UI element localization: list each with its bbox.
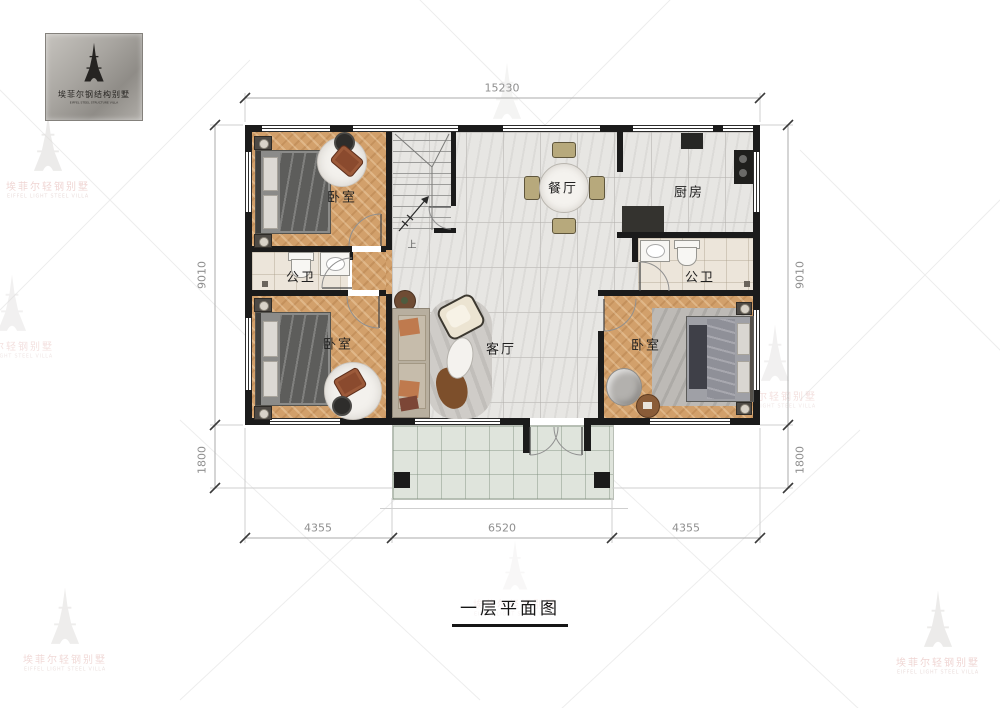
bed [686,316,754,402]
window [753,152,760,212]
watermark: 埃菲尔轻钢别墅 EIFFEL LIGHT STEEL VILLA [878,588,998,676]
porch-step-edge [380,508,628,509]
label-living: 客厅 [486,339,516,358]
window [270,418,340,425]
dim-bottom-right: 4355 [672,522,700,535]
floor-plan-page: 埃菲尔轻钢别墅 EIFFEL LIGHT STEEL VILLA 埃菲尔轻钢别墅… [0,0,1000,708]
dim-right-lower: 1800 [794,446,807,474]
watermark: 埃菲尔轻钢别墅 EIFFEL LIGHT STEEL VILLA [0,272,72,360]
dim-bottom-left: 4355 [304,522,332,535]
kitchen-counter [622,206,664,232]
logo-brand-en: EIFFEL STEEL STRUCTURE VILLA [58,101,130,105]
nightstand [254,136,272,150]
window [650,418,730,425]
watermark: 埃菲尔轻钢别墅 EIFFEL LIGHT STEEL VILLA [0,112,108,200]
wall-bath-l-bottom [252,290,348,296]
porch-floor [392,425,614,500]
drawing-title: 一层平面图 [452,594,568,627]
sofa [392,308,430,418]
label-bath-l: 公卫 [286,267,316,286]
watermark-text-cn: 埃菲尔轻钢别墅 [0,178,108,193]
watermark-text-en: EIFFEL LIGHT STEEL VILLA [0,194,96,200]
floor-drain [262,281,268,287]
window [245,152,252,212]
dim-right-upper: 9010 [794,261,807,289]
nightstand [254,406,272,420]
nightstand [736,402,752,415]
label-bedroom-bl: 卧室 [323,334,353,353]
side-table [636,394,660,418]
dim-bottom-center: 6520 [488,522,516,535]
dining-chair [552,218,576,234]
wall-bath-r-left [632,238,638,262]
window [723,125,753,132]
dining-chair [524,176,540,200]
label-bath-r: 公卫 [685,267,715,286]
wall-stub [381,246,386,252]
corridor-floor [352,252,386,290]
stove [734,150,753,184]
nightstand [736,302,752,315]
wall-stair-right [451,132,456,206]
label-bedroom-tl: 卧室 [327,187,357,206]
wall-kitchen-left [617,132,623,172]
stair-treads [393,140,451,232]
patio-wing-wall [584,425,591,451]
nightstand [254,298,272,312]
wall-bedroom-tl-right [386,132,392,250]
logo-brand-cn: 埃菲尔钢结构别墅 [46,89,142,100]
window [262,125,330,132]
wall-bedroom-br-top [598,290,753,296]
label-bedroom-br: 卧室 [631,335,661,354]
label-stair-up: 上 [407,238,416,251]
window [503,125,600,132]
toilet [677,247,697,266]
wall-stair-bottom [434,228,456,233]
window [753,310,760,390]
dining-chair [552,142,576,158]
dim-top: 15230 [485,82,520,95]
watermark: 埃菲尔轻钢别墅 EIFFEL LIGHT STEEL VILLA [5,585,125,673]
fridge [681,133,703,149]
nightstand [254,234,272,248]
patio-door-opening [530,418,584,425]
dim-left-lower: 1800 [196,446,209,474]
window [353,125,458,132]
wall-bedroom-br-left [598,331,604,418]
window [415,418,500,425]
floor-drain [744,281,750,287]
wall-stub [379,290,386,296]
dim-left-upper: 9010 [196,261,209,289]
dining-chair [589,176,605,200]
window [245,318,252,390]
patio-wing-wall [523,425,530,453]
porch-column [394,472,410,488]
label-kitchen: 厨房 [674,182,704,201]
side-table [332,396,352,416]
window [633,125,713,132]
company-logo: 埃菲尔钢结构别墅 EIFFEL STEEL STRUCTURE VILLA [45,33,143,121]
porch-column [594,472,610,488]
sink [320,252,350,276]
label-dining: 餐厅 [548,178,578,197]
eiffel-tower-icon [16,112,80,176]
eiffel-tower-logo-icon [72,39,116,87]
corridor-opening-floor [386,250,392,294]
bed [255,312,331,406]
sink [640,240,670,262]
